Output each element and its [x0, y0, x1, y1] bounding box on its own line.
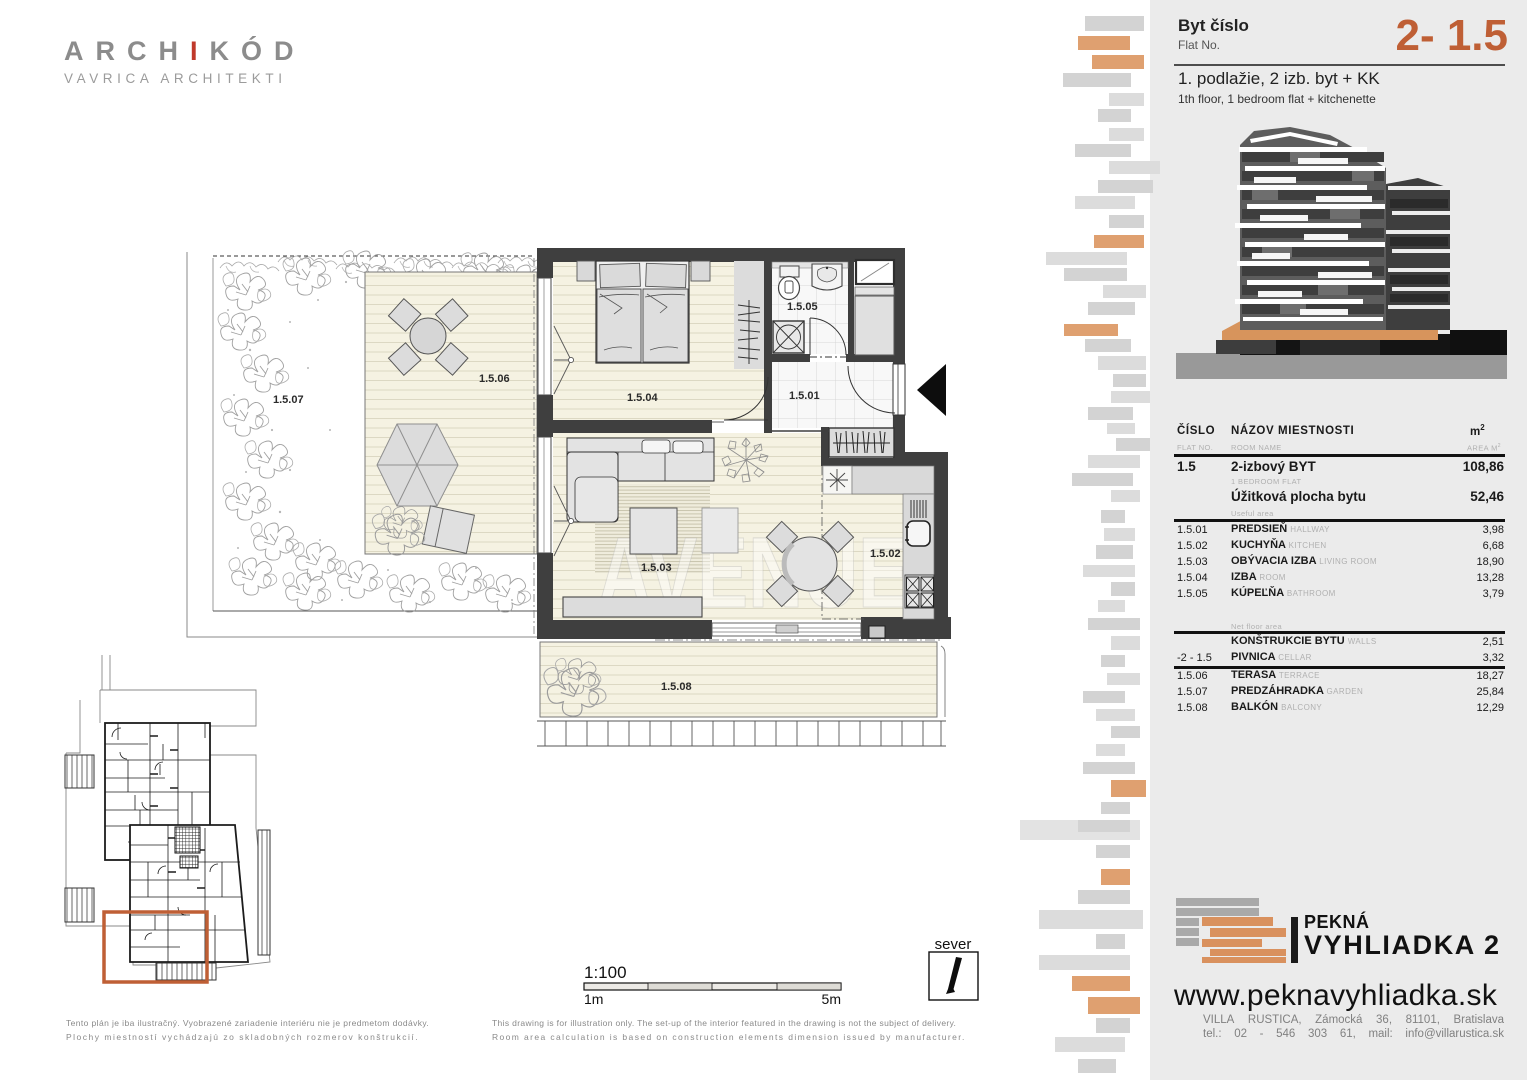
svg-text:1.5.04: 1.5.04 — [627, 392, 658, 404]
svg-text:1.5.08: 1.5.08 — [661, 681, 692, 693]
svg-text:1.5.06: 1.5.06 — [479, 373, 510, 385]
svg-text:1:100: 1:100 — [584, 963, 627, 982]
svg-text:1.5.05: 1.5.05 — [787, 301, 818, 313]
svg-text:1.5.02: 1.5.02 — [870, 548, 901, 560]
svg-text:1.5.07: 1.5.07 — [273, 394, 304, 406]
svg-text:1.5.01: 1.5.01 — [789, 390, 820, 402]
svg-text:1.5.03: 1.5.03 — [641, 562, 672, 574]
svg-text:5m: 5m — [822, 991, 841, 1007]
svg-text:sever: sever — [935, 936, 972, 953]
svg-text:1m: 1m — [584, 991, 603, 1007]
